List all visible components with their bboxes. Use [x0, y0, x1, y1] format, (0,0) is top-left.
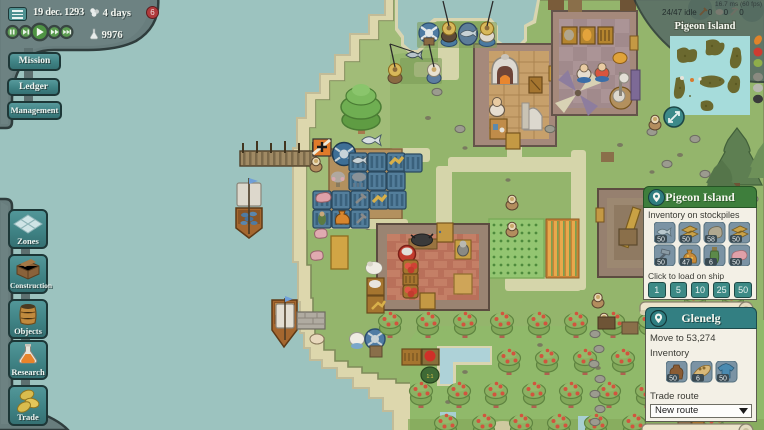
svg-text:50: 50 [657, 260, 665, 267]
svg-text:6: 6 [709, 260, 713, 267]
svg-text:50: 50 [669, 376, 677, 383]
svg-text:50: 50 [732, 237, 740, 244]
svg-text:58: 58 [707, 237, 715, 244]
svg-text:47: 47 [682, 260, 690, 267]
svg-text:50: 50 [682, 237, 690, 244]
svg-text:6: 6 [696, 376, 700, 383]
svg-text:50: 50 [719, 376, 727, 383]
svg-text:1:1: 1:1 [427, 374, 434, 380]
svg-text:50: 50 [732, 260, 740, 267]
svg-text:50: 50 [657, 237, 665, 244]
